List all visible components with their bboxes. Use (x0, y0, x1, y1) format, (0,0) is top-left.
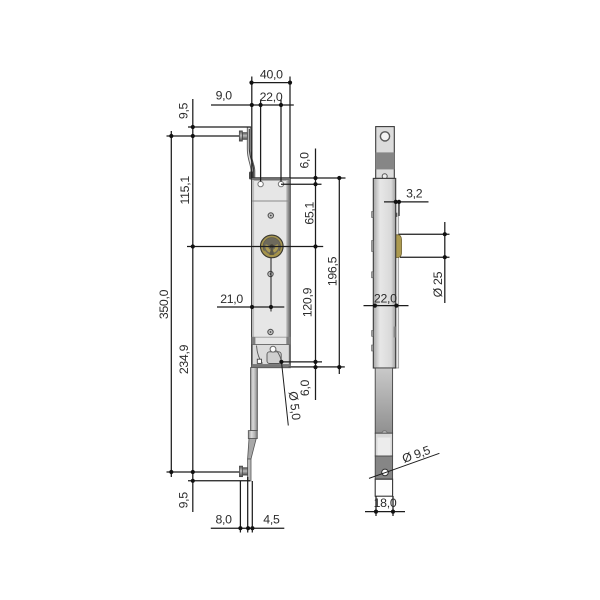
svg-text:6,0: 6,0 (298, 152, 312, 169)
svg-text:196,5: 196,5 (325, 256, 339, 286)
svg-text:9,5: 9,5 (176, 102, 190, 119)
svg-text:3,2: 3,2 (406, 186, 423, 200)
svg-text:18,0: 18,0 (374, 496, 397, 510)
svg-text:65,1: 65,1 (302, 201, 316, 224)
svg-text:Ø 25: Ø 25 (431, 271, 445, 297)
svg-text:21,0: 21,0 (220, 292, 243, 306)
svg-text:9,5: 9,5 (177, 492, 191, 509)
svg-text:4,5: 4,5 (263, 513, 280, 527)
svg-text:9,0: 9,0 (216, 89, 233, 103)
svg-text:22,0: 22,0 (374, 291, 397, 305)
svg-text:234,9: 234,9 (177, 344, 191, 374)
svg-text:22,0: 22,0 (260, 90, 283, 104)
svg-text:350,0: 350,0 (157, 289, 171, 319)
svg-text:8,0: 8,0 (215, 513, 232, 527)
svg-text:115,1: 115,1 (178, 176, 192, 205)
svg-text:40,0: 40,0 (260, 68, 283, 82)
svg-text:120,9: 120,9 (301, 287, 315, 317)
